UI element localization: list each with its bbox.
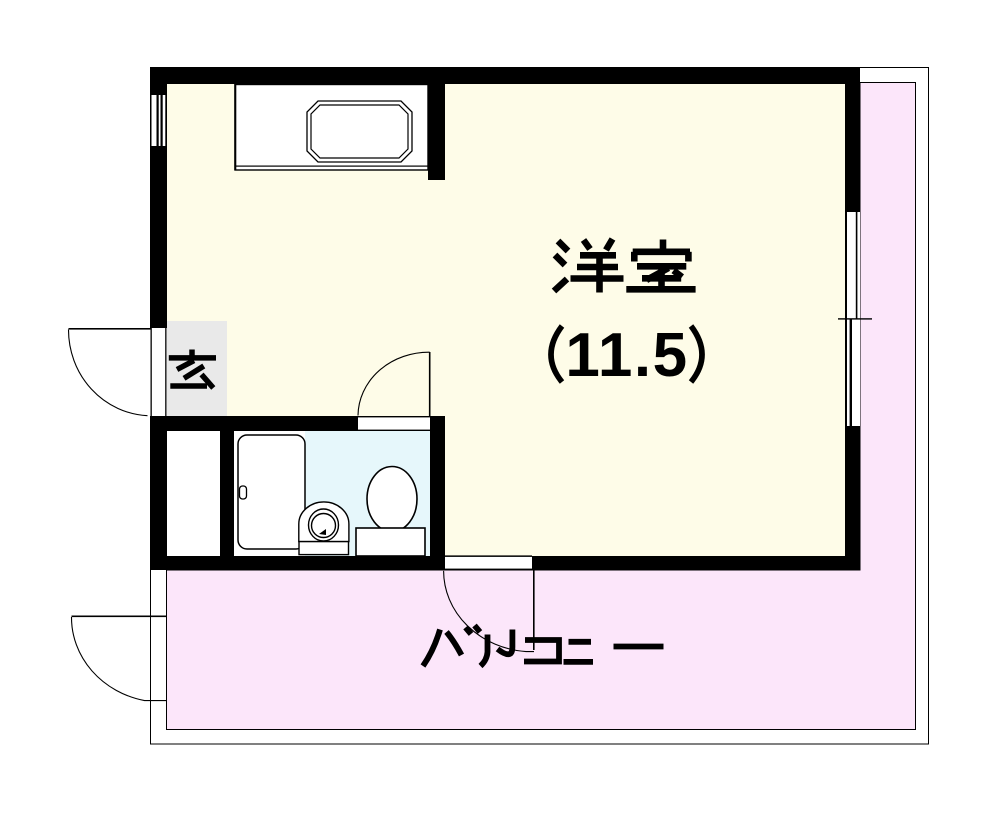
svg-text:11.5: 11.5 — [565, 321, 688, 390]
